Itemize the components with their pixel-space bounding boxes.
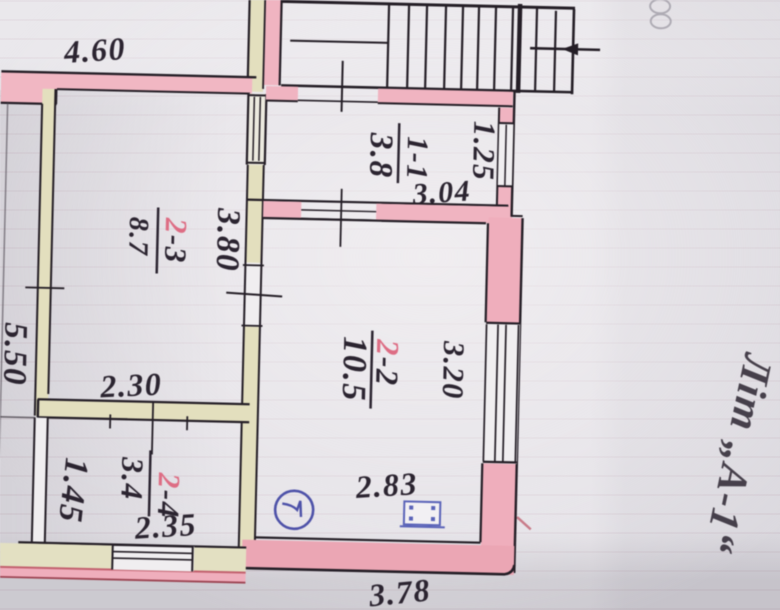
svg-text:1.25: 1.25 [466,121,502,182]
svg-text:2.35: 2.35 [133,506,198,546]
svg-text:10.5: 10.5 [335,336,374,402]
svg-text:2-3: 2-3 [158,217,194,265]
svg-text:1.45: 1.45 [51,456,95,525]
svg-text:8.7: 8.7 [122,216,154,256]
svg-text:2.30: 2.30 [98,366,163,405]
svg-text:4.60: 4.60 [62,30,127,70]
svg-text:1-1: 1-1 [400,136,434,181]
svg-text:3.78: 3.78 [366,571,432,610]
svg-text:5.50: 5.50 [0,322,33,387]
svg-text:2-2: 2-2 [369,338,406,387]
svg-text:3.20: 3.20 [436,340,470,400]
svg-text:3.8: 3.8 [362,131,399,179]
svg-text:3.4: 3.4 [114,456,150,501]
svg-text:2.83: 2.83 [354,465,419,505]
svg-text:3.80: 3.80 [209,207,247,273]
